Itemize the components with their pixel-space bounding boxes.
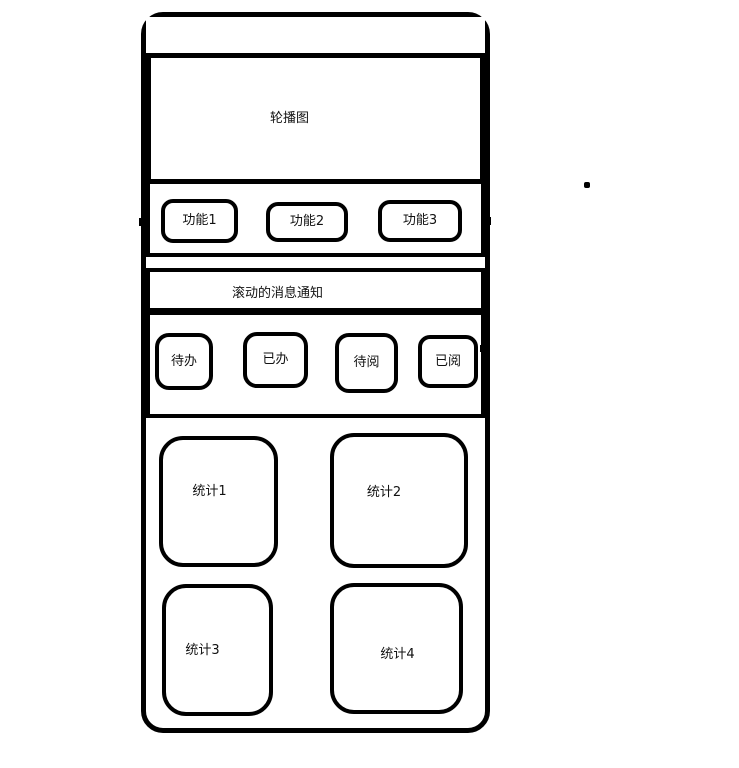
done-button-label: 已办 [262,352,288,368]
stat-card-4-label: 统计4 [380,647,414,663]
connector-tick-left-1 [139,218,147,226]
notice-bar-label: 滚动的消息通知 [150,286,323,302]
carousel-placeholder[interactable]: 轮播图 [146,53,485,184]
stat-card-1-label: 统计1 [192,484,226,500]
status-bar [146,17,485,53]
function-button-3-label: 功能3 [403,213,437,229]
stat-card-1[interactable]: 统计1 [159,436,278,567]
todo-button-label: 待办 [171,354,197,370]
notice-bar[interactable]: 滚动的消息通知 [146,268,485,312]
function-button-2[interactable]: 功能2 [266,202,348,242]
connector-tick-left-2 [144,346,150,353]
function-button-3[interactable]: 功能3 [378,200,462,242]
function-button-1[interactable]: 功能1 [161,199,238,243]
todo-button[interactable]: 待办 [155,333,213,390]
connector-tick-right-1 [482,217,491,225]
stat-card-2-label: 统计2 [367,485,401,501]
function-button-1-label: 功能1 [182,213,216,229]
stray-dot [584,182,590,188]
stat-card-3-label: 统计3 [185,643,219,659]
phone-frame: 轮播图 功能1 功能2 功能3 滚动的消息通知 待办 已办 待阅 已阅 统计1 [141,12,490,733]
stat-card-2[interactable]: 统计2 [330,433,468,568]
read-button[interactable]: 已阅 [418,335,478,388]
connector-tick-right-2 [480,345,486,352]
carousel-label: 轮播图 [270,111,309,127]
wireframe-canvas: 轮播图 功能1 功能2 功能3 滚动的消息通知 待办 已办 待阅 已阅 统计1 [0,0,739,768]
to-read-button[interactable]: 待阅 [335,333,398,393]
stat-card-4[interactable]: 统计4 [330,583,463,714]
to-read-button-label: 待阅 [353,355,379,371]
stat-card-3[interactable]: 统计3 [162,584,273,716]
done-button[interactable]: 已办 [243,332,308,388]
read-button-label: 已阅 [435,354,461,370]
function-button-2-label: 功能2 [290,214,324,230]
